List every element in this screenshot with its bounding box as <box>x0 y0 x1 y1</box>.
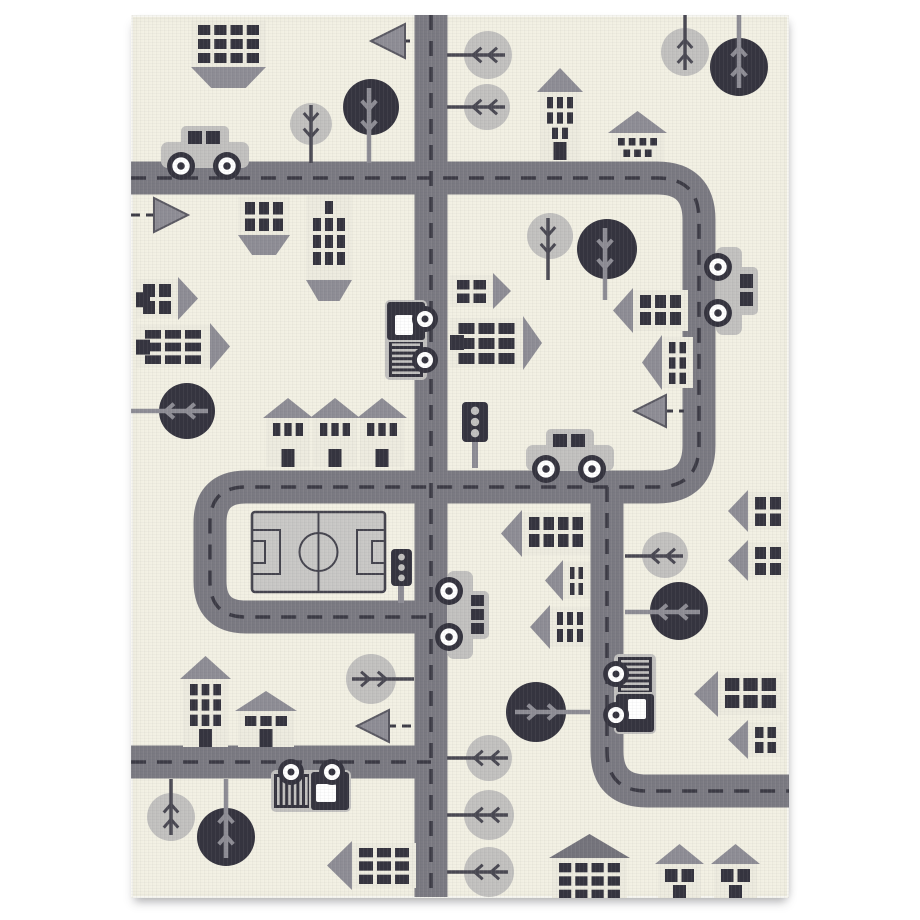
house <box>136 277 198 320</box>
roof <box>655 844 704 864</box>
window <box>655 312 666 325</box>
house <box>694 671 783 717</box>
house <box>501 510 590 557</box>
traffic-light <box>462 402 488 468</box>
window <box>567 112 573 123</box>
screenshot <box>0 0 920 920</box>
window <box>231 25 243 35</box>
window <box>273 202 283 215</box>
house-body <box>662 337 693 388</box>
roof <box>357 398 407 418</box>
window <box>231 39 243 49</box>
roof <box>327 841 352 890</box>
roof <box>493 273 511 309</box>
window <box>680 357 687 368</box>
window <box>577 629 583 642</box>
window <box>325 235 333 248</box>
window <box>562 128 568 139</box>
traffic-light <box>391 549 412 603</box>
window <box>474 294 487 304</box>
house <box>728 720 783 759</box>
window <box>557 629 563 642</box>
window <box>259 202 269 215</box>
window <box>573 534 584 547</box>
house <box>357 398 407 467</box>
window <box>198 25 210 35</box>
window <box>159 301 171 314</box>
window <box>213 684 221 695</box>
door <box>136 292 150 307</box>
window <box>457 294 470 304</box>
window <box>640 138 647 146</box>
block-base <box>306 280 352 301</box>
window <box>313 235 321 248</box>
tree <box>447 84 510 130</box>
house-body <box>450 275 493 307</box>
house <box>136 323 230 370</box>
window <box>725 695 739 708</box>
roof <box>523 316 542 370</box>
roof <box>711 844 760 864</box>
window <box>770 514 781 527</box>
window <box>325 218 333 231</box>
window <box>273 219 283 232</box>
window <box>367 423 374 436</box>
window <box>214 53 226 63</box>
window <box>608 863 620 872</box>
window <box>459 353 475 364</box>
window <box>645 150 652 158</box>
window <box>725 678 739 691</box>
window <box>575 876 587 885</box>
apartment-block <box>238 197 290 255</box>
window <box>457 280 470 290</box>
window <box>755 727 764 738</box>
window <box>768 742 777 753</box>
tree <box>625 582 708 640</box>
apartment-block <box>306 196 352 301</box>
window <box>337 218 345 231</box>
tree <box>147 779 195 841</box>
window <box>669 373 676 384</box>
window <box>557 97 563 108</box>
window <box>273 423 280 436</box>
window <box>743 678 757 691</box>
house <box>545 560 590 601</box>
window <box>284 423 291 436</box>
window <box>558 534 569 547</box>
roof <box>549 834 630 858</box>
window <box>313 218 321 231</box>
window <box>377 861 391 870</box>
window <box>337 252 345 265</box>
window <box>213 699 221 710</box>
window <box>185 330 201 339</box>
rug-artwork <box>0 0 920 920</box>
window <box>474 280 487 290</box>
left-arrow-icon <box>634 395 666 427</box>
window <box>592 890 604 899</box>
roof <box>728 720 748 759</box>
house <box>549 834 630 903</box>
window <box>395 861 409 870</box>
window <box>640 312 651 325</box>
house <box>450 273 511 309</box>
roof <box>694 671 718 717</box>
house <box>608 111 667 161</box>
window <box>190 684 198 695</box>
house <box>642 335 693 390</box>
window <box>762 695 776 708</box>
window <box>770 497 781 510</box>
window <box>529 534 540 547</box>
window <box>245 716 256 726</box>
tree <box>577 219 637 300</box>
roof <box>537 68 583 92</box>
roof <box>178 277 198 320</box>
window <box>770 547 781 559</box>
window <box>721 869 734 882</box>
window <box>579 567 584 579</box>
house <box>537 68 583 160</box>
window <box>575 863 587 872</box>
window <box>547 97 553 108</box>
window <box>479 323 495 334</box>
window <box>185 343 201 352</box>
roof <box>310 398 360 418</box>
window <box>755 547 766 559</box>
tree <box>527 213 573 280</box>
roof <box>530 605 550 649</box>
window <box>567 629 573 642</box>
roof <box>501 510 522 557</box>
window <box>634 150 641 158</box>
window <box>579 583 584 595</box>
window <box>198 39 210 49</box>
tree <box>447 790 514 840</box>
window <box>552 128 558 139</box>
house <box>728 490 788 532</box>
right-arrow-icon <box>154 198 188 232</box>
house <box>450 316 542 370</box>
window <box>558 517 569 530</box>
window <box>755 742 764 753</box>
window <box>231 53 243 63</box>
window <box>395 875 409 884</box>
window <box>557 112 563 123</box>
house <box>613 288 688 333</box>
window <box>547 112 553 123</box>
window <box>198 53 210 63</box>
window <box>670 312 681 325</box>
window <box>165 343 181 352</box>
tree <box>197 779 255 866</box>
tree <box>290 103 332 163</box>
window <box>202 715 210 726</box>
window <box>650 138 657 146</box>
window <box>655 295 666 308</box>
window <box>459 323 475 334</box>
window <box>479 338 495 349</box>
window <box>544 534 555 547</box>
window <box>640 295 651 308</box>
window <box>390 423 397 436</box>
door <box>282 449 295 467</box>
house <box>310 398 360 467</box>
window <box>343 423 350 436</box>
window <box>247 25 259 35</box>
window <box>359 848 373 857</box>
house <box>655 844 704 903</box>
window <box>557 612 563 625</box>
window <box>377 875 391 884</box>
window <box>559 890 571 899</box>
tree <box>710 15 768 96</box>
window <box>337 235 345 248</box>
roof <box>608 111 667 133</box>
house <box>711 844 760 903</box>
door <box>554 142 567 160</box>
window <box>559 876 571 885</box>
window <box>165 330 181 339</box>
window <box>567 612 573 625</box>
window <box>145 355 161 364</box>
house <box>327 841 416 890</box>
window <box>159 284 171 297</box>
cab-window <box>316 784 336 802</box>
cab-window <box>395 315 413 335</box>
roof <box>180 656 231 679</box>
window <box>325 252 333 265</box>
window <box>623 150 630 158</box>
window <box>247 53 259 63</box>
door <box>136 340 150 355</box>
window <box>762 678 776 691</box>
window <box>499 338 515 349</box>
window <box>325 201 333 214</box>
window <box>320 423 327 436</box>
window <box>629 138 636 146</box>
roof <box>235 691 297 711</box>
window <box>669 342 676 353</box>
tree <box>506 682 590 742</box>
tree <box>625 532 688 578</box>
roof <box>263 398 313 418</box>
window <box>260 716 271 726</box>
door <box>673 885 686 903</box>
arrow-sign <box>634 395 684 427</box>
roof <box>613 288 633 333</box>
window <box>592 863 604 872</box>
cab-window <box>628 699 646 719</box>
window <box>214 25 226 35</box>
left-arrow-icon <box>371 24 405 58</box>
arrow-sign <box>131 198 188 232</box>
tree <box>447 31 512 79</box>
block-base <box>238 235 290 255</box>
window <box>499 353 515 364</box>
door <box>376 449 389 467</box>
window <box>165 355 181 364</box>
roof <box>642 335 662 390</box>
window <box>331 423 338 436</box>
arrow-sign <box>357 710 415 742</box>
window <box>296 423 303 436</box>
window <box>499 323 515 334</box>
window <box>755 514 766 527</box>
house <box>530 605 590 649</box>
window <box>479 353 495 364</box>
window <box>395 848 409 857</box>
window <box>768 727 777 738</box>
rug-scene <box>131 15 789 903</box>
arrow-sign <box>371 24 416 58</box>
roof <box>728 540 748 581</box>
window <box>359 875 373 884</box>
window <box>145 330 161 339</box>
window <box>190 699 198 710</box>
window <box>190 715 198 726</box>
window <box>669 357 676 368</box>
window <box>755 497 766 510</box>
left-arrow-icon <box>357 710 389 742</box>
house-body <box>748 492 788 530</box>
window <box>259 219 269 232</box>
door <box>450 335 464 350</box>
house <box>263 398 313 467</box>
window <box>529 517 540 530</box>
window <box>378 423 385 436</box>
house-body <box>748 722 783 757</box>
door <box>729 885 742 903</box>
door <box>260 729 273 747</box>
window <box>377 848 391 857</box>
window <box>276 716 287 726</box>
tree <box>447 847 514 897</box>
soccer-field <box>252 512 385 592</box>
window <box>755 563 766 575</box>
block-base <box>191 67 266 88</box>
window <box>680 373 687 384</box>
window <box>770 563 781 575</box>
roof <box>210 323 230 370</box>
roof <box>545 560 563 601</box>
window <box>592 876 604 885</box>
window <box>577 612 583 625</box>
light-tree-crown <box>527 213 573 259</box>
window <box>185 355 201 364</box>
tree <box>447 735 512 781</box>
window <box>618 138 625 146</box>
window <box>214 39 226 49</box>
window <box>738 869 751 882</box>
window <box>359 861 373 870</box>
roof <box>728 490 748 532</box>
house <box>728 540 788 581</box>
window <box>245 202 255 215</box>
house-body <box>563 562 590 599</box>
apartment-block <box>191 20 266 88</box>
window <box>245 219 255 232</box>
window <box>313 252 321 265</box>
window <box>247 39 259 49</box>
window <box>743 695 757 708</box>
window <box>575 890 587 899</box>
window <box>544 517 555 530</box>
tree <box>661 15 709 76</box>
window <box>213 715 221 726</box>
window <box>670 295 681 308</box>
door <box>329 449 342 467</box>
tree <box>343 79 399 163</box>
window <box>570 567 575 579</box>
window <box>682 869 695 882</box>
house <box>180 656 231 747</box>
window <box>573 517 584 530</box>
window <box>202 684 210 695</box>
window <box>559 863 571 872</box>
tree <box>346 654 414 704</box>
window <box>567 97 573 108</box>
house-body <box>748 542 788 579</box>
window <box>680 342 687 353</box>
door <box>199 729 212 747</box>
window <box>608 876 620 885</box>
house <box>235 691 297 747</box>
window <box>665 869 678 882</box>
window <box>570 583 575 595</box>
tree <box>131 383 215 439</box>
window <box>202 699 210 710</box>
window <box>608 890 620 899</box>
